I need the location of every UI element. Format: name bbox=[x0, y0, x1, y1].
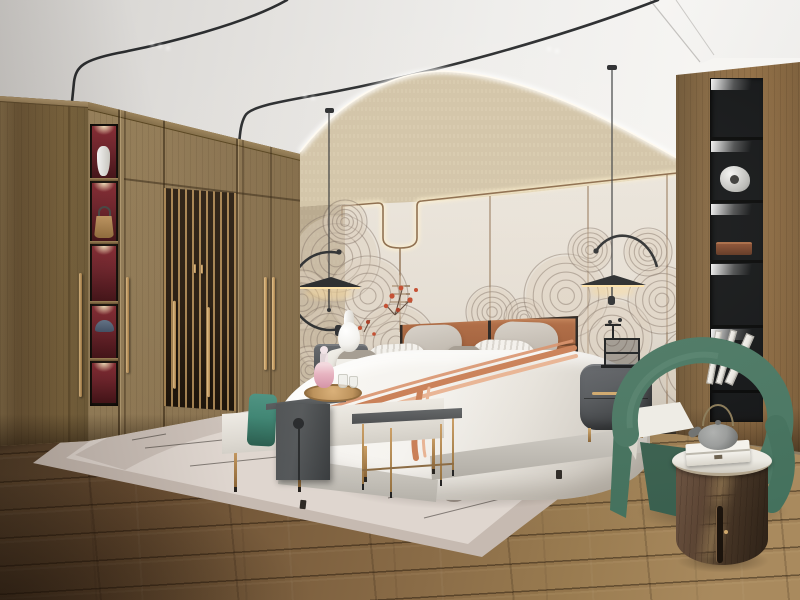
wardrobe-side-seam bbox=[68, 86, 70, 448]
cubby-downlight bbox=[92, 306, 116, 318]
nightstand-leg bbox=[588, 428, 591, 442]
teapot-lid-knob bbox=[715, 420, 721, 425]
bench-leg bbox=[432, 436, 435, 474]
drum-table-pin bbox=[724, 530, 728, 534]
cubby bbox=[92, 306, 116, 358]
side-table-leg bbox=[362, 424, 364, 490]
chair-right-arm bbox=[772, 426, 784, 502]
wardrobe-door-handle bbox=[126, 277, 129, 373]
handbag bbox=[94, 216, 114, 238]
niche-shelf-divider bbox=[710, 137, 763, 140]
gift-box-label bbox=[714, 455, 722, 460]
drinking-glass bbox=[349, 376, 358, 388]
bench-leg bbox=[234, 448, 237, 492]
niche-shelf-divider bbox=[710, 200, 763, 203]
pendant-shade bbox=[296, 277, 362, 287]
niche-shelf-divider bbox=[710, 260, 763, 263]
pendant-lamp-left bbox=[291, 108, 362, 336]
grey-teapot bbox=[698, 424, 738, 450]
drum-table-slit bbox=[716, 506, 723, 563]
cubby-downlight bbox=[92, 183, 116, 195]
sculpture-hole bbox=[730, 175, 739, 184]
cubby-shelf bbox=[90, 178, 118, 181]
bedroom-scene bbox=[0, 0, 800, 600]
bed-foot bbox=[556, 470, 562, 479]
cubby-shelf bbox=[90, 241, 118, 244]
wardrobe-door-handle bbox=[264, 277, 267, 370]
wardrobe-stile-highlight bbox=[238, 86, 239, 448]
lattice-door-handle bbox=[207, 307, 210, 397]
wooden-box bbox=[716, 242, 752, 255]
bed-foot bbox=[300, 500, 307, 510]
waterfall-table-slab bbox=[276, 404, 330, 480]
drinking-glass bbox=[338, 374, 348, 388]
wardrobe-stile bbox=[124, 86, 126, 448]
display-cubby-column bbox=[90, 124, 118, 406]
wardrobe-door-handle bbox=[79, 273, 82, 397]
cubby-downlight bbox=[92, 246, 116, 258]
side-table-leg bbox=[440, 424, 442, 486]
cubby-downlight bbox=[92, 126, 116, 138]
cubby-shelf bbox=[90, 358, 118, 361]
vase-lamp-body bbox=[338, 322, 360, 352]
wardrobe-stile bbox=[242, 86, 244, 448]
pendant-arc-arm bbox=[596, 236, 657, 267]
teal-throw bbox=[247, 393, 278, 446]
abstract-sculpture bbox=[720, 166, 750, 192]
lattice-doors bbox=[164, 188, 236, 411]
pendant-canopy bbox=[607, 65, 617, 70]
niche-led bbox=[711, 141, 762, 152]
ornament-knob bbox=[618, 318, 622, 322]
wardrobe-side-grain bbox=[0, 86, 88, 448]
cubby bbox=[92, 363, 116, 403]
cubby bbox=[92, 246, 116, 301]
handbag-handle bbox=[98, 206, 111, 216]
lattice-door-handle bbox=[173, 301, 176, 389]
niche-led bbox=[711, 204, 762, 215]
cubby-shelf bbox=[90, 301, 118, 304]
drum-table-body bbox=[676, 462, 768, 565]
niche-led bbox=[711, 264, 762, 275]
upper-door-handle bbox=[201, 265, 203, 274]
niche-shelf-divider bbox=[710, 325, 763, 328]
bench-leg bbox=[364, 446, 367, 482]
table-slit-detail bbox=[298, 428, 300, 480]
pendant-lamp-right bbox=[580, 65, 657, 305]
ornament-knob bbox=[608, 320, 612, 324]
wardrobe-stile-highlight bbox=[120, 86, 121, 448]
side-table-leg bbox=[390, 428, 392, 498]
side-table-leg bbox=[452, 418, 454, 476]
pink-decanter bbox=[314, 362, 334, 388]
pendant-shade bbox=[580, 275, 646, 285]
upper-door-handle bbox=[194, 264, 196, 273]
cubby-downlight bbox=[92, 363, 116, 375]
niche-led bbox=[711, 79, 762, 90]
white-vase bbox=[97, 146, 110, 176]
